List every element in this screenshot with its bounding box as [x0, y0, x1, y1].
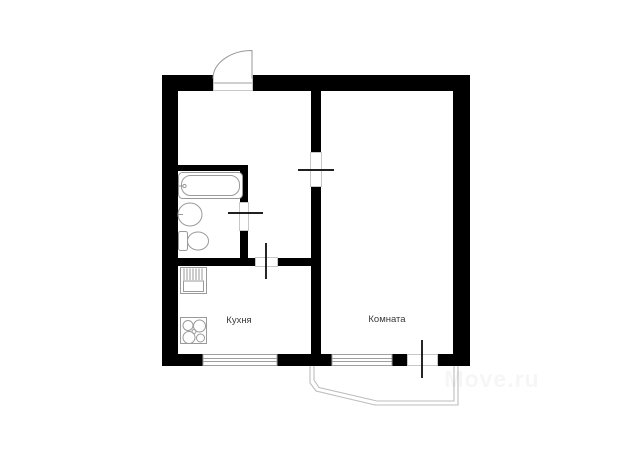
- wall-left: [162, 75, 178, 366]
- wall-bottom-segment-4: [438, 354, 470, 366]
- entrance-door: [213, 51, 253, 91]
- wall-bottom-segment-2: [277, 354, 332, 366]
- kitchen-sink-drainboard-hatch: [184, 269, 202, 281]
- wall-room-partition-upper: [311, 91, 321, 152]
- entrance-door-swing-arc: [213, 51, 252, 79]
- wall-top-right-segment: [253, 75, 470, 91]
- kitchen-sink: [181, 268, 207, 294]
- kitchen-door: [256, 243, 278, 279]
- wall-bathroom-right-lower: [240, 231, 248, 258]
- wall-kitchen-top-left: [178, 258, 255, 266]
- watermark-text: Move.ru: [444, 366, 539, 392]
- room-door: [298, 153, 334, 187]
- wall-room-partition-lower: [311, 187, 321, 354]
- wall-right: [453, 75, 470, 366]
- bathroom-door-opening: [240, 203, 249, 231]
- wall-bottom-segment-1: [162, 354, 203, 366]
- kitchen-window-frame: [203, 355, 277, 366]
- floorplan: Кухня Комната Move.ru: [0, 0, 640, 453]
- stove: [181, 318, 207, 344]
- balcony-outline: [310, 366, 458, 405]
- bathtub-rim: [179, 173, 243, 199]
- washbasin: [178, 203, 202, 226]
- balcony-door: [408, 340, 438, 378]
- floorplan-canvas: Кухня Комната Move.ru: [0, 0, 640, 453]
- bathroom-door: [228, 203, 263, 231]
- wall-bathroom-top: [178, 165, 248, 171]
- balcony-outer-line: [310, 366, 458, 405]
- kitchen-label: Кухня: [226, 315, 251, 326]
- toilet-tank: [179, 232, 188, 251]
- room-label: Комната: [368, 314, 406, 325]
- wall-kitchen-top-right: [278, 258, 321, 266]
- bathtub: [179, 173, 243, 199]
- wall-bottom-segment-3: [392, 354, 407, 366]
- toilet: [179, 232, 209, 251]
- room-window-frame: [332, 355, 392, 366]
- toilet-bowl: [188, 232, 209, 250]
- kitchen-window: [203, 355, 277, 366]
- room-window: [332, 355, 392, 366]
